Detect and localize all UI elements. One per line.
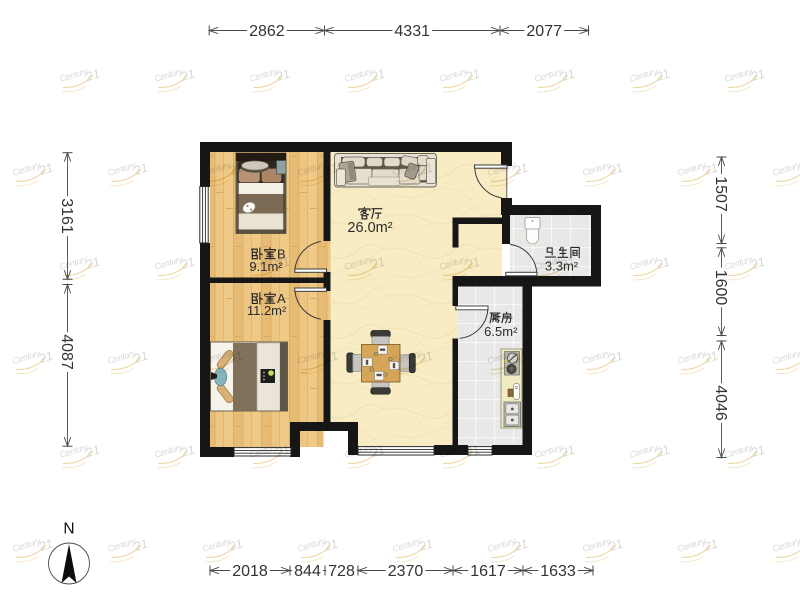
svg-text:844: 844 (294, 563, 321, 580)
svg-text:1600: 1600 (712, 270, 729, 306)
svg-text:4087: 4087 (58, 334, 75, 370)
svg-text:2018: 2018 (232, 563, 268, 580)
svg-text:728: 728 (328, 563, 355, 580)
svg-text:4331: 4331 (394, 23, 430, 40)
svg-text:N: N (63, 521, 74, 538)
svg-text:2370: 2370 (388, 563, 424, 580)
svg-text:1633: 1633 (540, 563, 576, 580)
svg-text:1507: 1507 (712, 176, 729, 212)
svg-text:2862: 2862 (249, 23, 285, 40)
svg-text:6.5m²: 6.5m² (484, 324, 518, 339)
svg-text:4046: 4046 (712, 385, 729, 421)
svg-text:1617: 1617 (470, 563, 506, 580)
svg-text:11.2m²: 11.2m² (247, 303, 287, 318)
svg-text:2077: 2077 (526, 23, 562, 40)
svg-text:26.0m²: 26.0m² (347, 220, 392, 236)
svg-text:3161: 3161 (58, 198, 75, 234)
